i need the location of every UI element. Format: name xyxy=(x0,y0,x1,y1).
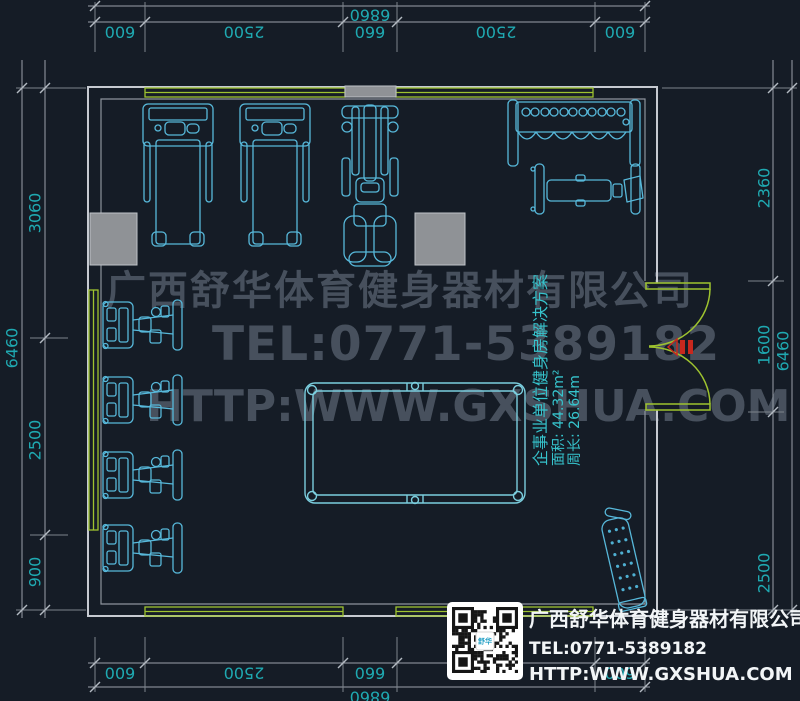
dim-label: 6460 xyxy=(3,328,22,369)
column xyxy=(90,213,137,265)
dim-label: 6860 xyxy=(350,688,391,701)
wall-segment xyxy=(345,86,396,97)
dim-label: 2500 xyxy=(224,664,265,683)
plan-perimeter: 周长: 26.64m xyxy=(567,280,584,466)
dim-label: 600 xyxy=(105,23,136,42)
contact-website: HTTP:WWW.GXSHUA.COM xyxy=(529,664,800,685)
dim-label: 2500 xyxy=(755,553,774,594)
dimension-lines: 6860 600 2500 660 2500 600 600 2500 660 … xyxy=(3,1,798,701)
multi-station-gym xyxy=(342,105,398,266)
dim-label: 2360 xyxy=(755,168,774,209)
qr-code: 舒华 xyxy=(447,602,523,680)
dim-label: 2500 xyxy=(224,23,265,42)
strength-machine xyxy=(103,523,182,573)
dim-label: 900 xyxy=(26,557,45,588)
treadmill xyxy=(143,104,213,246)
contact-tel: TEL:0771-5389182 xyxy=(529,639,800,659)
dim-label: 6460 xyxy=(774,331,793,372)
dim-label: 1600 xyxy=(755,325,774,366)
dumbbell-rack xyxy=(508,100,640,166)
columns xyxy=(90,86,465,265)
strength-machine xyxy=(103,300,182,350)
situp-board xyxy=(596,502,653,612)
contact-company: 广西舒华体育健身器材有限公司 xyxy=(529,603,800,632)
dim-label: 6860 xyxy=(350,6,391,25)
plan-area: 面积: 44.32m² xyxy=(551,280,568,466)
weight-bench xyxy=(531,164,643,214)
dim-label: 2500 xyxy=(26,420,45,461)
contact-card: 广西舒华体育健身器材有限公司 TEL:0771-5389182 HTTP:WWW… xyxy=(529,603,800,685)
dim-label: 660 xyxy=(355,664,386,683)
entrance-door xyxy=(646,283,710,410)
dim-label: 660 xyxy=(355,23,386,42)
floorplan-drawing: 6860 600 2500 660 2500 600 600 2500 660 … xyxy=(0,0,800,701)
plan-title: 企事业单位健身房解决方案 xyxy=(532,280,551,466)
column xyxy=(415,213,465,265)
dim-label: 600 xyxy=(605,23,636,42)
cad-floorplan-page: 广西舒华体育健身器材有限公司 TEL:0771-5389182 HTTP:WWW… xyxy=(0,0,800,701)
treadmill xyxy=(240,104,310,246)
qr-logo: 舒华 xyxy=(476,632,495,651)
strength-machine xyxy=(103,375,182,425)
dim-label: 600 xyxy=(105,664,136,683)
dim-label: 3060 xyxy=(26,193,45,234)
window-bands xyxy=(89,88,593,616)
plan-label: 企事业单位健身房解决方案 面积: 44.32m² 周长: 26.64m xyxy=(532,280,590,466)
billiard-table xyxy=(305,383,525,504)
dim-label: 2500 xyxy=(476,23,517,42)
strength-machine xyxy=(103,450,182,500)
